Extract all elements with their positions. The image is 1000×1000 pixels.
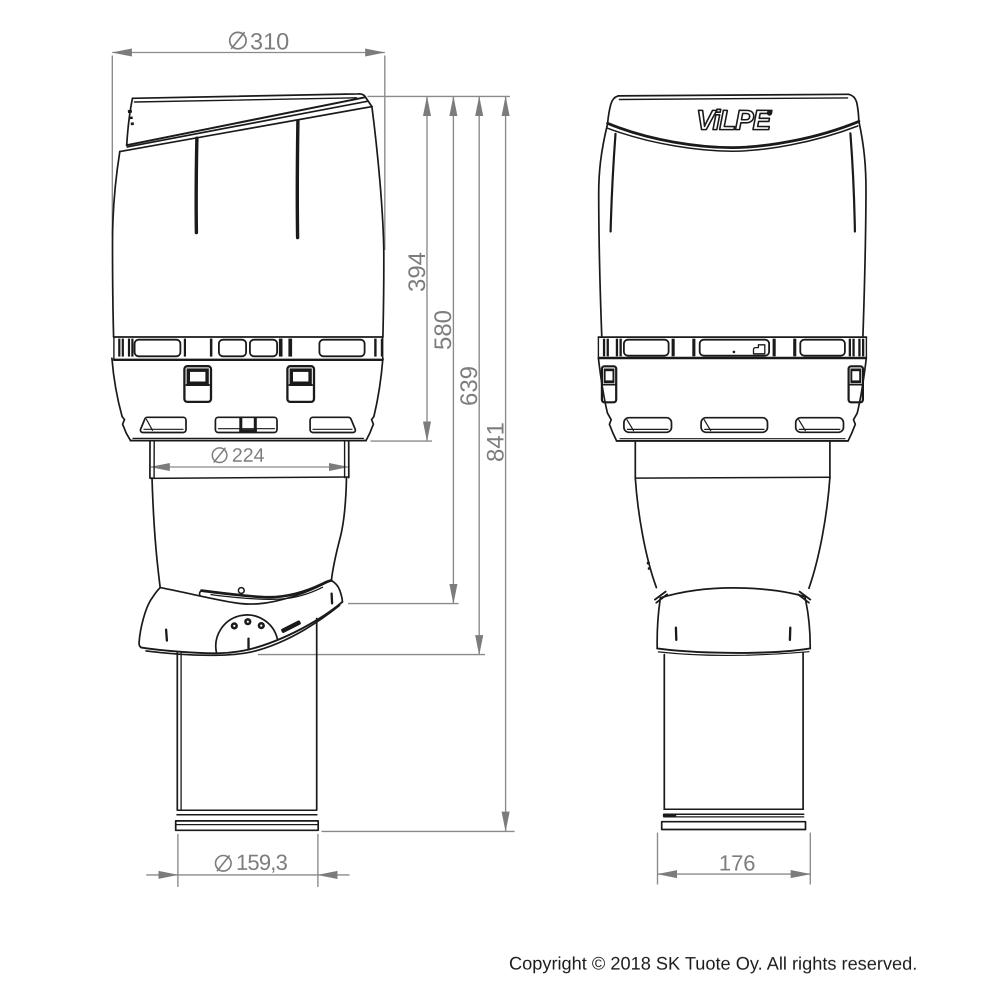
svg-text:841: 841 [482,422,509,462]
svg-text:580: 580 [430,310,457,350]
svg-text:310: 310 [250,28,289,54]
svg-text:176: 176 [719,851,756,876]
svg-text:159,3: 159,3 [236,850,288,875]
svg-text:ViLPE: ViLPE [696,105,772,136]
svg-text:Copyright © 2018 SK Tuote Oy.: Copyright © 2018 SK Tuote Oy. All rights… [509,954,917,974]
svg-text:639: 639 [456,366,483,406]
svg-text:224: 224 [232,445,265,467]
svg-text:394: 394 [404,252,431,292]
